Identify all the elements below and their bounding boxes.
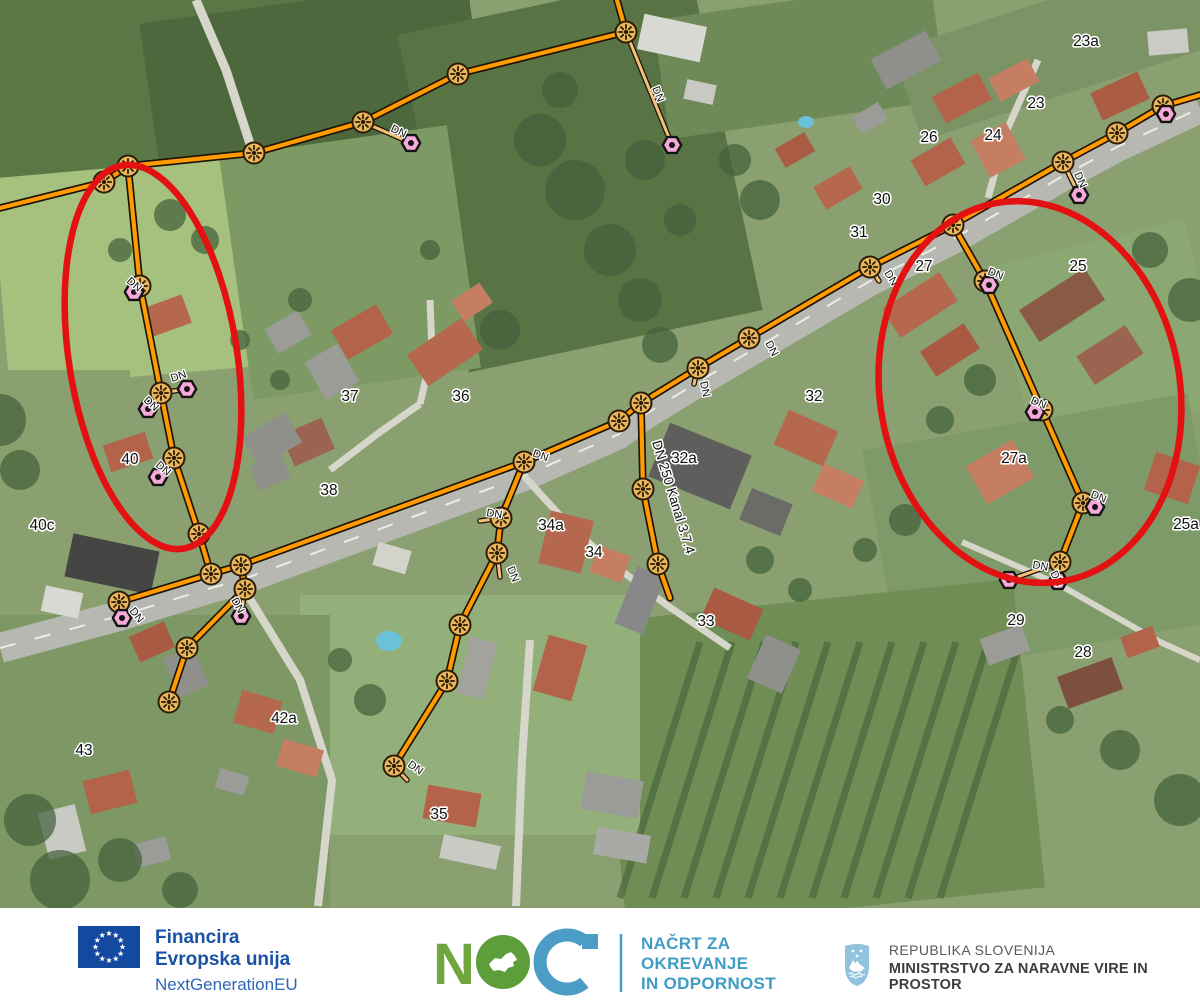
hydrant-icon: [1157, 106, 1175, 122]
tree: [4, 794, 56, 846]
gov-line2: MINISTRSTVO ZA NARAVNE VIRE IN PROSTOR: [889, 961, 1200, 993]
tree: [98, 838, 142, 882]
eu-funding-line2: Evropska unija: [155, 949, 298, 971]
noo-letter-n: N: [433, 932, 475, 997]
valve-icon: [860, 257, 881, 278]
valve-icon: [631, 393, 652, 414]
tree: [1132, 232, 1168, 268]
valve-icon: [688, 358, 709, 379]
tree: [719, 144, 751, 176]
tree: [108, 238, 132, 262]
tree: [270, 370, 290, 390]
tree: [354, 684, 386, 716]
tree: [542, 72, 578, 108]
house-number-label: 34: [585, 544, 603, 561]
noo-logo: N: [433, 928, 633, 1000]
slovenia-government-logo: REPUBLIKA SLOVENIJA MINISTRSTVO ZA NARAV…: [843, 942, 1200, 993]
house-number-label: 25a: [1173, 516, 1199, 533]
tree: [625, 140, 665, 180]
eu-funding-logo: Financira Evropska unija NextGenerationE…: [78, 926, 298, 995]
valve-icon: [384, 756, 405, 777]
valve-icon: [450, 615, 471, 636]
valve-icon: [487, 543, 508, 564]
valve-icon: [177, 638, 198, 659]
house-number-label: 38: [320, 482, 337, 499]
hydrant-icon: [663, 137, 681, 153]
tree: [0, 450, 40, 490]
tree: [420, 240, 440, 260]
valve-icon: [514, 452, 535, 473]
house-number-label: 27a: [1001, 450, 1027, 467]
tree: [514, 114, 566, 166]
house-number-label: 35: [430, 806, 447, 823]
valve-icon: [616, 22, 637, 43]
house-number-label: 33: [697, 613, 714, 630]
valve-icon: [1107, 123, 1128, 144]
house-number-label: 25: [1069, 258, 1086, 275]
tree: [584, 224, 636, 276]
hydrant-icon: [1070, 187, 1088, 203]
tree: [740, 180, 780, 220]
slovenia-coat-of-arms-icon: [843, 942, 869, 988]
house-number-label: 29: [1007, 612, 1024, 629]
eu-flag-icon: [78, 926, 140, 968]
noo-title-line3: IN ODPORNOST: [641, 974, 776, 994]
footer: Financira Evropska unija NextGenerationE…: [0, 908, 1200, 1006]
noo-title: NAČRT ZA OKREVANJE IN ODPORNOST: [641, 934, 776, 994]
map-canvas: DNDNDNDNDNDNDNDNDNDNDNDNDNDNDNDNDNDNDNDN…: [0, 0, 1200, 908]
pool: [376, 631, 402, 651]
dn-label: DN: [486, 507, 503, 521]
house-number-label: 36: [452, 388, 469, 405]
house-number-label: 34a: [538, 517, 564, 534]
house-number-label: 42a: [271, 710, 297, 727]
house-number-label: 23a: [1073, 33, 1099, 50]
valve-icon: [1053, 152, 1074, 173]
house-number-label: 27: [915, 258, 932, 275]
tree: [664, 204, 696, 236]
house-number-label: 24: [984, 127, 1002, 144]
tree: [746, 546, 774, 574]
gov-line1: REPUBLIKA SLOVENIJA: [889, 942, 1200, 958]
tree: [162, 872, 198, 908]
tree: [288, 288, 312, 312]
valve-icon: [201, 564, 222, 585]
valve-icon: [437, 671, 458, 692]
valve-icon: [353, 112, 374, 133]
valve-icon: [648, 554, 669, 575]
valve-icon: [633, 479, 654, 500]
house-number-label: 37: [341, 388, 358, 405]
house-number-label: 26: [920, 129, 937, 146]
house-number-label: 28: [1074, 644, 1091, 661]
noo-title-line2: OKREVANJE: [641, 954, 776, 974]
pool: [798, 116, 814, 128]
house-number-label: 32: [805, 388, 822, 405]
screenshot-stage: DNDNDNDNDNDNDNDNDNDNDNDNDNDNDNDNDNDNDNDN…: [0, 0, 1200, 1006]
building: [1147, 28, 1189, 55]
tree: [1100, 730, 1140, 770]
house-number-label: 40c: [30, 517, 55, 534]
noo-blue-tab-icon: [582, 934, 598, 949]
eu-funding-text: Financira Evropska unija NextGenerationE…: [155, 926, 298, 995]
valve-icon: [1050, 552, 1071, 573]
tree: [1046, 706, 1074, 734]
eu-funding-line3: NextGenerationEU: [155, 975, 298, 995]
tree: [642, 327, 678, 363]
house-number-label: 31: [850, 224, 867, 241]
house-number-label: 40: [121, 451, 139, 468]
tree: [30, 850, 90, 908]
valve-icon: [244, 143, 265, 164]
tree: [328, 648, 352, 672]
tree: [926, 406, 954, 434]
tree: [964, 364, 996, 396]
valve-icon: [609, 411, 630, 432]
house-number-label: 23: [1027, 95, 1044, 112]
tree: [618, 278, 662, 322]
noo-title-line1: NAČRT ZA: [641, 934, 776, 954]
tree: [853, 538, 877, 562]
tree: [788, 578, 812, 602]
valve-icon: [448, 64, 469, 85]
house-number-label: 43: [75, 742, 92, 759]
valve-icon: [739, 328, 760, 349]
house-number-label: 32a: [671, 450, 697, 467]
tree: [545, 160, 605, 220]
noo-blue-bracket-icon: [540, 935, 584, 989]
hydrant-icon: [178, 381, 196, 397]
valve-icon: [231, 555, 252, 576]
slovenia-government-text: REPUBLIKA SLOVENIJA MINISTRSTVO ZA NARAV…: [889, 942, 1200, 993]
valve-icon: [159, 692, 180, 713]
house-number-label: 30: [873, 191, 891, 208]
eu-funding-line1: Financira: [155, 927, 298, 949]
tree: [480, 310, 520, 350]
hydrant-icon: [402, 135, 420, 151]
